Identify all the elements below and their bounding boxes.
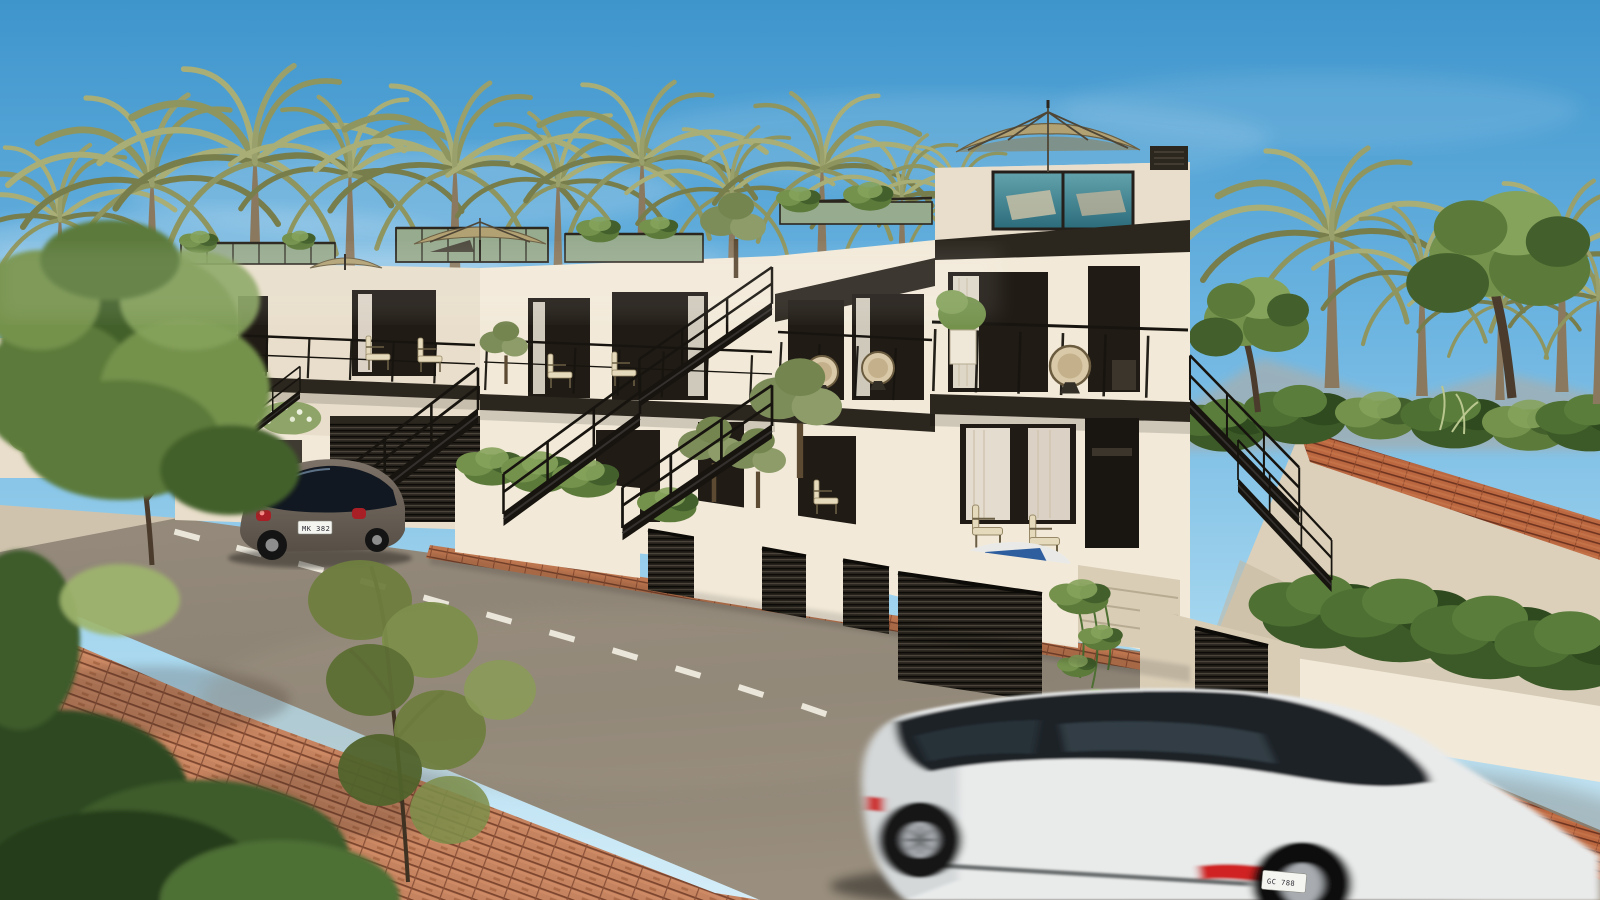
street-scene: MK 382	[0, 0, 1600, 900]
beetle-plate-text: MK 382	[302, 525, 330, 533]
atmospheric-haze	[0, 248, 1000, 318]
beetle-taillight-right	[352, 508, 366, 519]
side-table	[1112, 360, 1136, 390]
scene-canvas: MK 382	[0, 0, 1600, 900]
front-door	[1085, 418, 1139, 548]
